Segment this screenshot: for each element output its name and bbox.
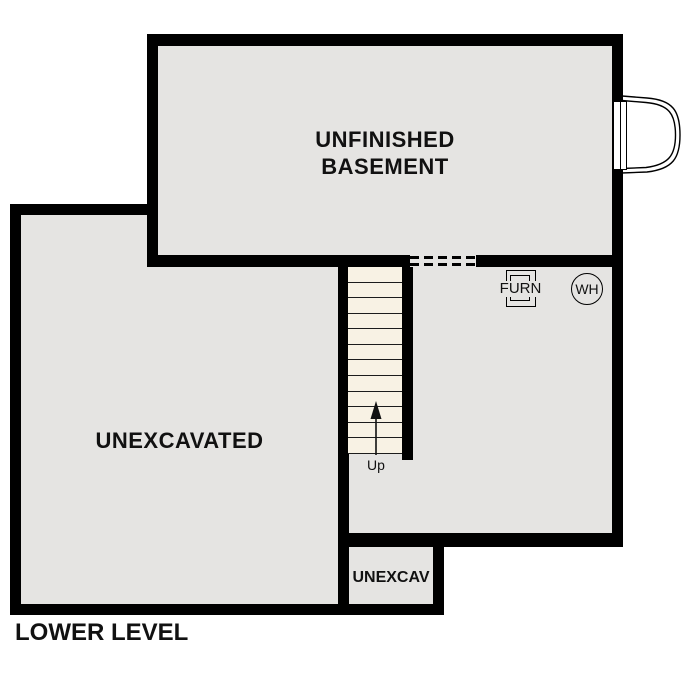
wall-basement-top <box>147 34 623 46</box>
window-frame <box>613 101 627 170</box>
stair-tread <box>348 314 402 330</box>
water-heater-icon: WH <box>571 273 603 305</box>
room-label-line2: BASEMENT <box>158 153 612 180</box>
floor-plan-canvas: Up FURN WH UNFINISHED BASEMENT UNEXCAVAT… <box>0 0 687 687</box>
stair-tread <box>348 329 402 345</box>
plan-title: LOWER LEVEL <box>15 620 188 646</box>
dashed-opening-top-line <box>410 256 476 259</box>
up-arrow-icon <box>365 395 387 457</box>
stair-tread <box>348 376 402 392</box>
stair-tread <box>348 267 402 283</box>
furnace-label: FURN <box>495 281 546 297</box>
wall-basement-bottom-right <box>476 255 612 267</box>
wall-basement-left <box>147 34 158 267</box>
stair-tread <box>348 283 402 299</box>
wall-basement-bottom-left <box>147 255 410 267</box>
dashed-opening-bottom-line <box>410 263 476 266</box>
water-heater-label: WH <box>575 281 598 297</box>
dashed-opening <box>410 255 476 267</box>
room-label-line1: UNFINISHED <box>158 126 612 153</box>
room-label-unfinished-basement: UNFINISHED BASEMENT <box>158 126 612 180</box>
unexcavated-floor <box>21 215 338 604</box>
wall-utility-bottom <box>338 533 623 547</box>
wall-bottom-exterior <box>10 604 444 615</box>
stair-tread <box>348 298 402 314</box>
stair-tread <box>348 345 402 361</box>
stair-tread <box>348 360 402 376</box>
wall-left-exterior <box>10 204 21 615</box>
wall-stair-right <box>402 255 413 460</box>
window-mullion <box>620 101 622 170</box>
stairs-up-label: Up <box>356 457 396 473</box>
wall-unexcavated-top <box>10 204 158 215</box>
room-label-unexcav-small: UNEXCAV <box>347 569 435 587</box>
room-label-unexcavated: UNEXCAVATED <box>21 427 338 454</box>
